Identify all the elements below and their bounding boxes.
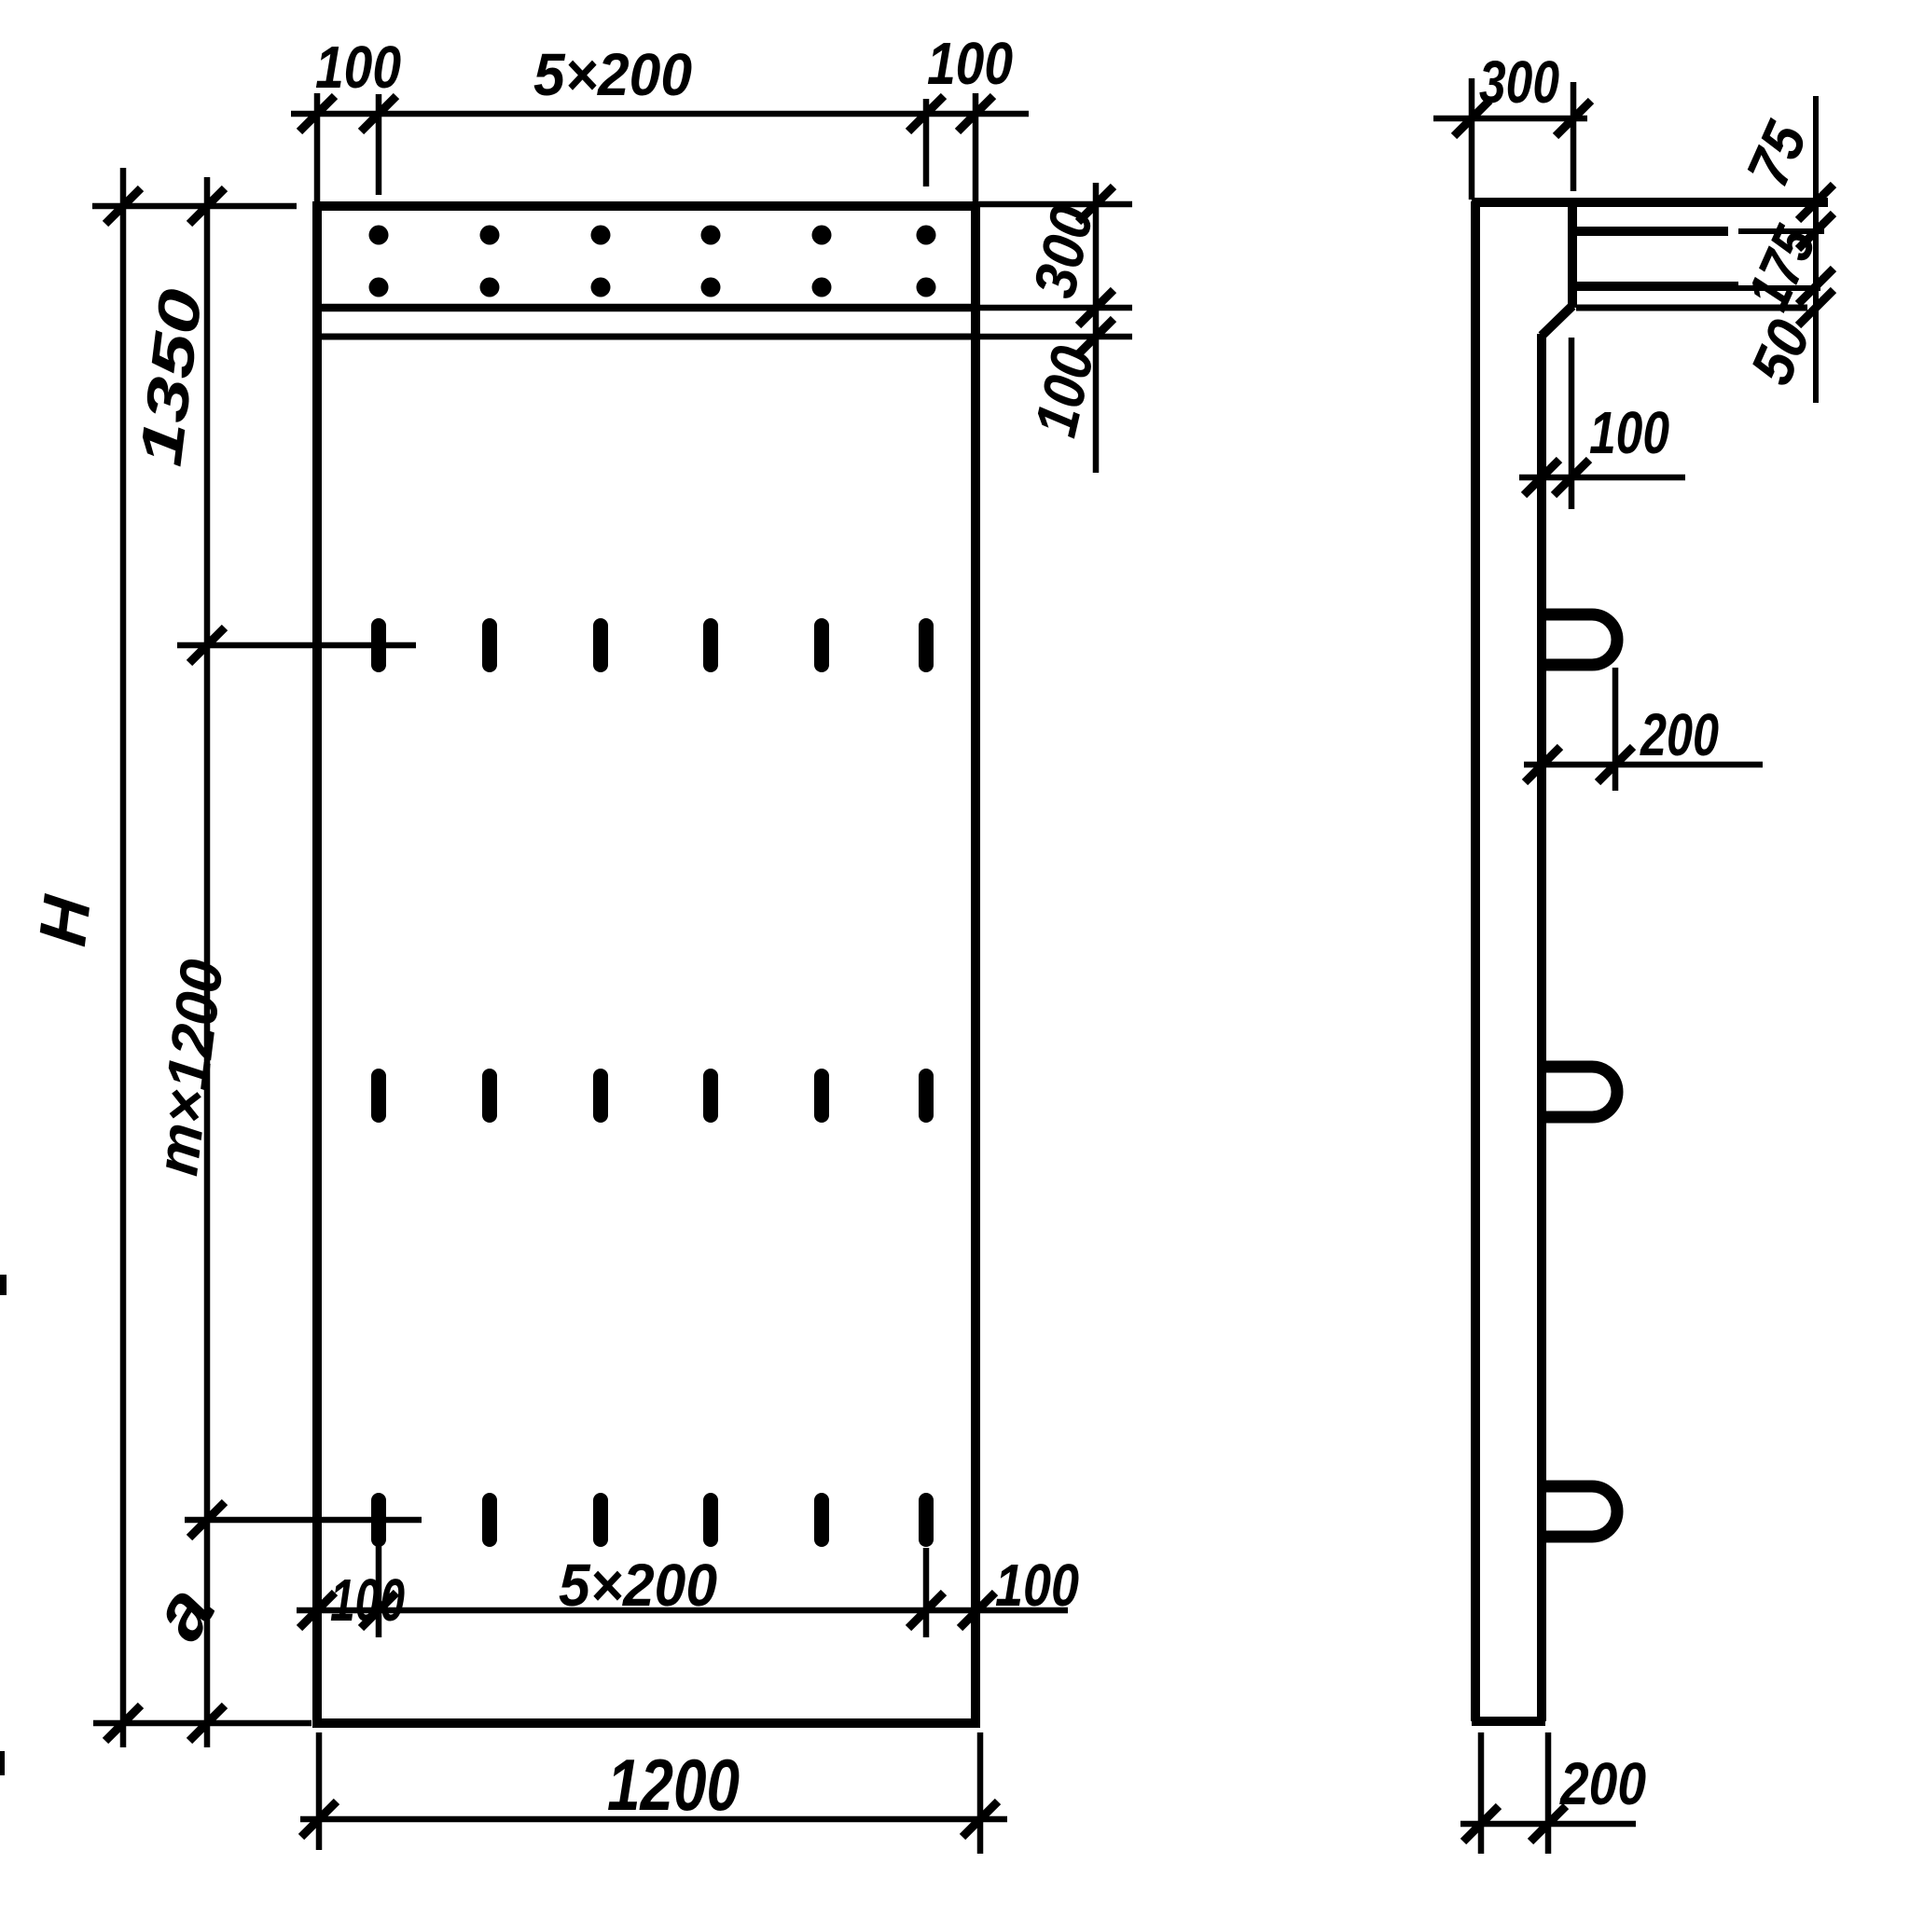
svg-text:100: 100 bbox=[927, 30, 1013, 97]
svg-text:1350: 1350 bbox=[127, 285, 215, 469]
svg-text:300: 300 bbox=[1479, 48, 1559, 116]
svg-text:100: 100 bbox=[330, 1566, 405, 1634]
svg-text:100: 100 bbox=[995, 1552, 1079, 1619]
svg-text:H: H bbox=[25, 890, 105, 949]
svg-text:5×200: 5×200 bbox=[559, 1552, 717, 1619]
svg-text:75: 75 bbox=[1734, 112, 1820, 197]
svg-text:a: a bbox=[133, 1571, 230, 1654]
svg-text:200: 200 bbox=[1640, 701, 1719, 768]
svg-text:100: 100 bbox=[1589, 399, 1669, 466]
svg-text:m×1200: m×1200 bbox=[143, 956, 236, 1179]
svg-text:200: 200 bbox=[1559, 1750, 1646, 1817]
svg-text:5×200: 5×200 bbox=[533, 41, 692, 108]
svg-text:100: 100 bbox=[315, 34, 401, 101]
svg-text:50: 50 bbox=[1737, 310, 1824, 394]
svg-text:1200: 1200 bbox=[607, 1744, 740, 1826]
